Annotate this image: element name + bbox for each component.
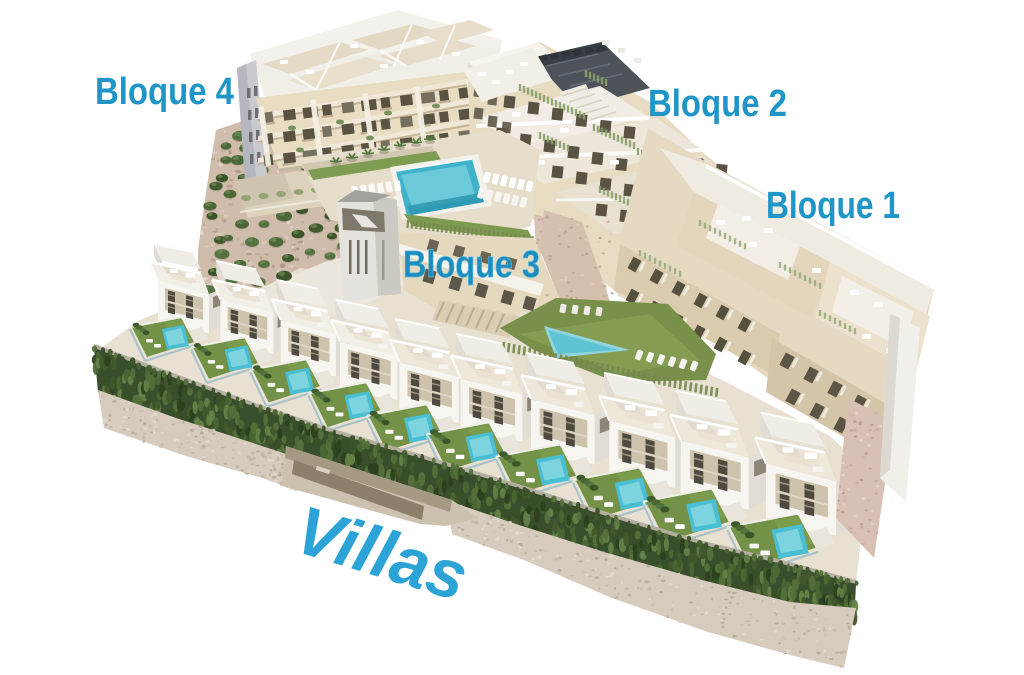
svg-text:Bloque 3: Bloque 3 [403,244,540,286]
svg-text:Bloque 1: Bloque 1 [766,185,900,227]
svg-text:Bloque 2: Bloque 2 [648,83,787,125]
svg-text:Bloque 4: Bloque 4 [95,71,234,113]
